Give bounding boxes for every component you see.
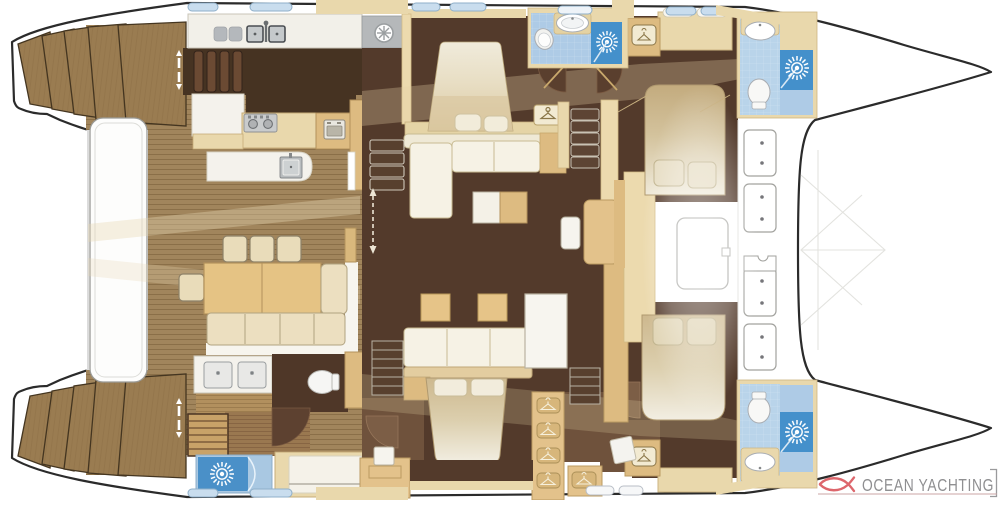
- svg-text:OCEAN YACHTING: OCEAN YACHTING: [862, 475, 994, 495]
